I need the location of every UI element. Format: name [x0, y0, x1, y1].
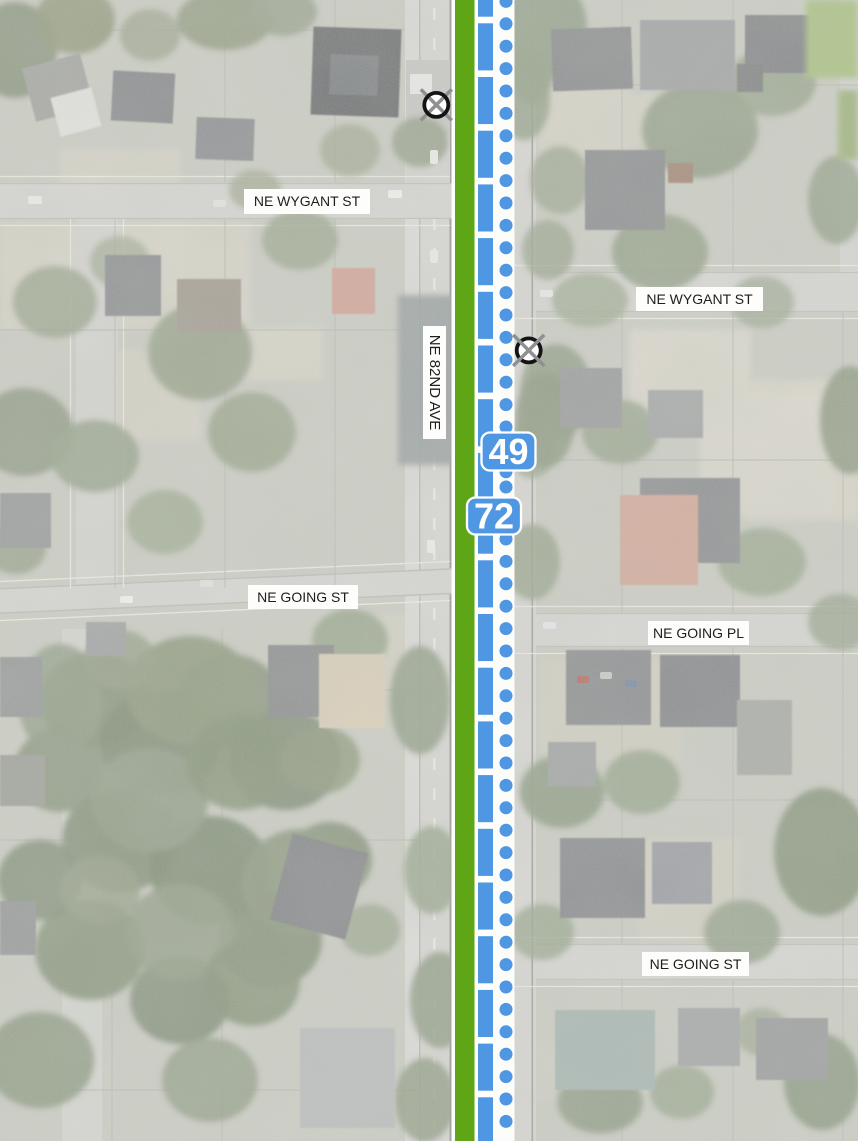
svg-text:72: 72	[474, 496, 514, 537]
svg-text:49: 49	[488, 431, 528, 472]
